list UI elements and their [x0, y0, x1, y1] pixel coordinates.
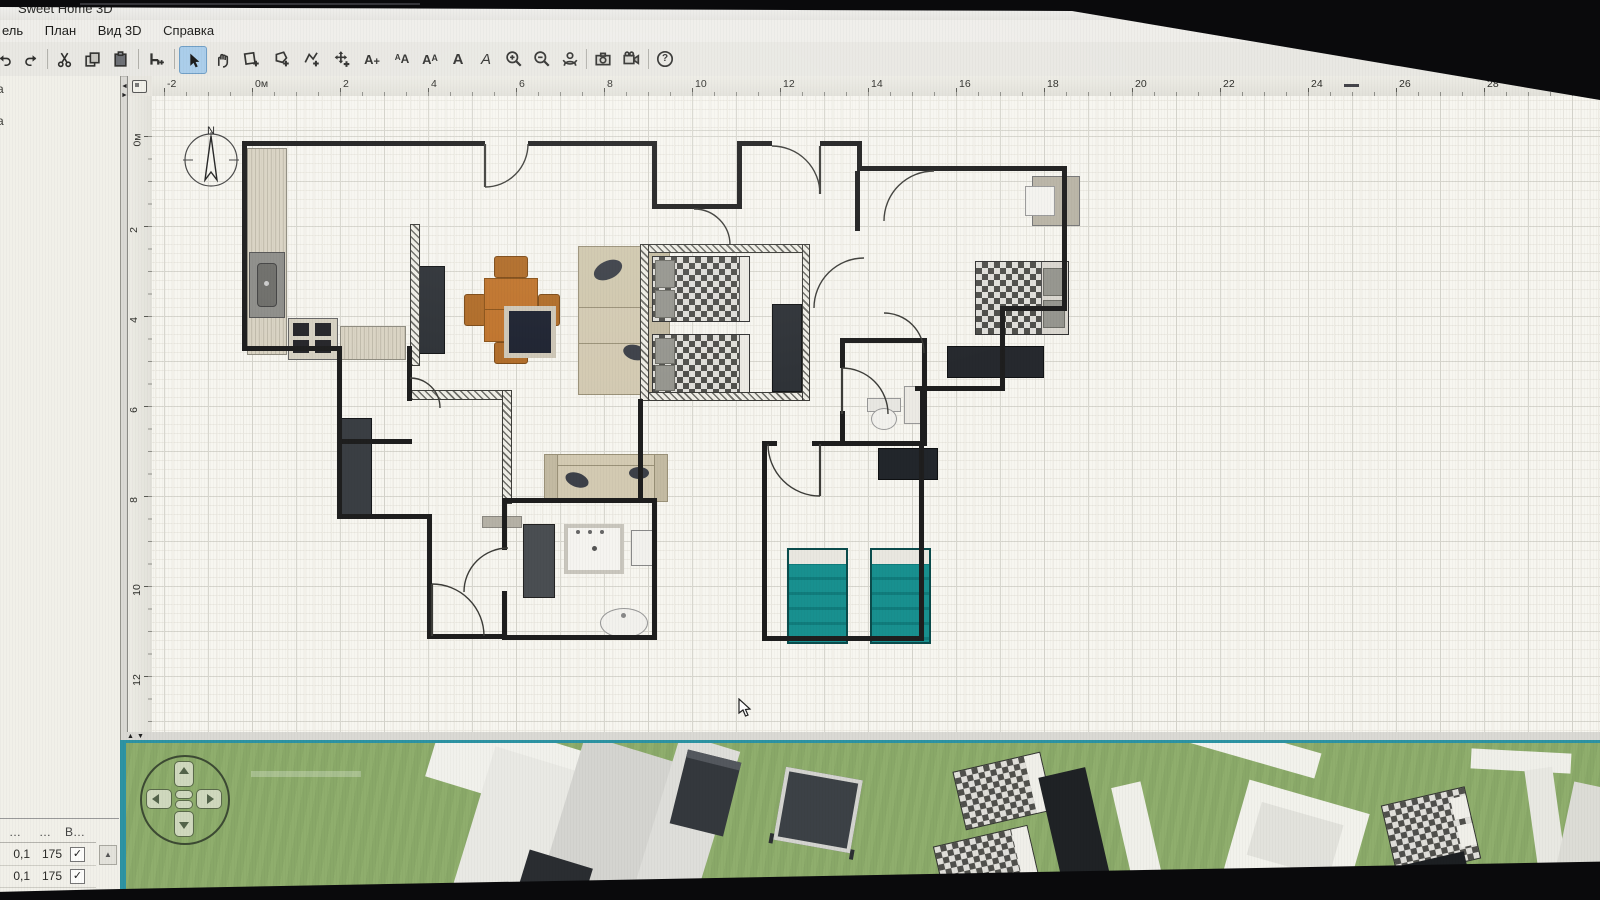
nav-left-button[interactable]	[146, 789, 172, 809]
mouse-cursor-icon	[737, 698, 755, 718]
vertical-ruler: 0м24681012	[128, 96, 153, 732]
zoom-in-button[interactable]	[501, 46, 527, 72]
zoom-out-button[interactable]	[529, 46, 555, 72]
toolbar-separator	[138, 49, 139, 69]
help-button[interactable]: ?	[652, 46, 678, 72]
h-ruler-label: 12	[783, 78, 795, 90]
3d-table	[773, 767, 863, 853]
plan-canvas[interactable]: N	[152, 96, 1600, 732]
create-dimensions-button[interactable]	[329, 46, 355, 72]
menu-3d-view[interactable]: Вид 3D	[89, 20, 151, 41]
create-video-button[interactable]	[618, 46, 644, 72]
nav-zoom-out-button[interactable]	[175, 800, 193, 809]
v-ruler-label: 10	[131, 584, 143, 596]
nav-right-button[interactable]	[196, 789, 222, 809]
nav-down-button[interactable]	[174, 811, 194, 837]
horizontal-ruler: -20м246810121416182022242628	[152, 76, 1600, 97]
cell-height: 175	[32, 847, 64, 861]
pan-tool-button[interactable]	[209, 46, 235, 72]
table-row[interactable]: 0,1175✓	[0, 843, 96, 866]
cell-height: 175	[32, 869, 64, 883]
3d-wall	[1161, 740, 1322, 779]
h-ruler-label: 24	[1311, 78, 1323, 90]
3d-navigation-control[interactable]	[140, 755, 230, 845]
virtual-visit-button[interactable]	[557, 46, 583, 72]
create-rooms-button[interactable]	[269, 46, 295, 72]
furniture-list-table: … … В… 0,1175✓0,1175✓ ▲	[0, 818, 119, 819]
h-ruler-label: 8	[607, 78, 613, 90]
plan-corner-icon	[132, 80, 147, 93]
v-ruler-label: 6	[128, 407, 140, 413]
toolbar-separator	[174, 49, 175, 69]
catalog-label-partial[interactable]: а	[0, 82, 4, 96]
create-polylines-button[interactable]	[299, 46, 325, 72]
col-header[interactable]: …	[0, 825, 30, 839]
toolbar-separator	[586, 49, 587, 69]
sweet-home-3d-window: Sweet Home 3D ель План Вид 3D Справка	[0, 0, 1600, 900]
h-ruler-label: 4	[431, 78, 437, 90]
h-ruler-label: 14	[871, 78, 883, 90]
h-ruler-label: 0м	[255, 78, 268, 90]
increase-text-size-button[interactable]: Aᴬ	[417, 46, 443, 72]
menu-furniture-partial[interactable]: ель	[0, 20, 32, 41]
paste-button[interactable]	[107, 46, 133, 72]
h-ruler-label: 22	[1223, 78, 1235, 90]
toolbar-separator	[648, 49, 649, 69]
select-tool-button[interactable]	[179, 46, 207, 74]
redo-button[interactable]	[18, 46, 44, 72]
3d-bed-checkered	[952, 752, 1053, 831]
furniture-catalog-panel: а а … … В… 0,1175✓0,1175✓ ▲	[0, 76, 121, 900]
copy-button[interactable]	[79, 46, 105, 72]
v-ruler-label: 2	[128, 227, 140, 233]
cut-button[interactable]	[51, 46, 77, 72]
table-header-row: … … В…	[0, 825, 96, 843]
ruler-corner	[128, 76, 153, 97]
v-ruler-label: 4	[128, 317, 140, 323]
col-header-visible[interactable]: В…	[60, 825, 90, 839]
bold-button[interactable]: A	[445, 46, 471, 72]
table-scroll-up-button[interactable]: ▲	[99, 845, 117, 865]
menu-plan[interactable]: План	[36, 20, 85, 41]
3d-wall	[1471, 748, 1572, 773]
photo-of-screen: Sweet Home 3D ель План Вид 3D Справка	[0, 0, 1600, 900]
nav-up-button[interactable]	[174, 761, 194, 787]
toolbar-separator	[47, 49, 48, 69]
h-ruler-label: 10	[695, 78, 707, 90]
create-walls-button[interactable]	[239, 46, 265, 72]
h-ruler-label: -2	[167, 78, 176, 90]
visible-checkbox[interactable]: ✓	[70, 869, 85, 884]
table-row[interactable]: 0,1175✓	[0, 865, 96, 888]
menu-help[interactable]: Справка	[154, 20, 223, 41]
plan-panel: -20м246810121416182022242628 0м24681012 …	[127, 76, 1600, 732]
h-ruler-label: 26	[1399, 78, 1411, 90]
create-photo-button[interactable]	[590, 46, 616, 72]
v-ruler-label: 12	[131, 674, 143, 686]
h-ruler-label: 6	[519, 78, 525, 90]
undo-button[interactable]	[0, 46, 17, 72]
cell-width: 0,1	[0, 847, 32, 861]
col-header[interactable]: …	[30, 825, 60, 839]
h-ruler-label: 2	[343, 78, 349, 90]
v-ruler-label: 0м	[132, 133, 144, 146]
cell-width: 0,1	[0, 869, 32, 883]
visible-checkbox[interactable]: ✓	[70, 847, 85, 862]
decrease-text-size-button[interactable]: ᴬA	[389, 46, 415, 72]
h-ruler-label: 18	[1047, 78, 1059, 90]
catalog-label-partial[interactable]: а	[0, 114, 4, 128]
italic-button[interactable]: A	[473, 46, 499, 72]
minimize-button[interactable]	[1344, 84, 1359, 87]
doors-layer	[152, 96, 1600, 732]
h-ruler-label: 16	[959, 78, 971, 90]
3d-horizon-highlight	[251, 771, 361, 777]
add-furniture-button[interactable]	[143, 46, 169, 72]
h-ruler-label: 20	[1135, 78, 1147, 90]
nav-zoom-in-button[interactable]	[175, 790, 193, 799]
add-text-button[interactable]: A +	[359, 46, 385, 72]
v-ruler-label: 8	[128, 497, 140, 503]
